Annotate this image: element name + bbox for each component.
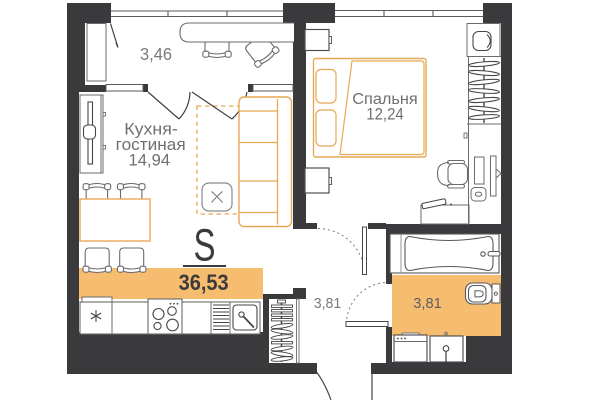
svg-text:3,81: 3,81 <box>413 295 442 312</box>
svg-text:S: S <box>194 220 216 271</box>
svg-text:12,24: 12,24 <box>366 104 404 123</box>
svg-text:3,81: 3,81 <box>314 295 342 312</box>
svg-text:3,46: 3,46 <box>140 44 172 64</box>
svg-text:36,53: 36,53 <box>179 270 229 295</box>
svg-text:14,94: 14,94 <box>129 151 171 170</box>
